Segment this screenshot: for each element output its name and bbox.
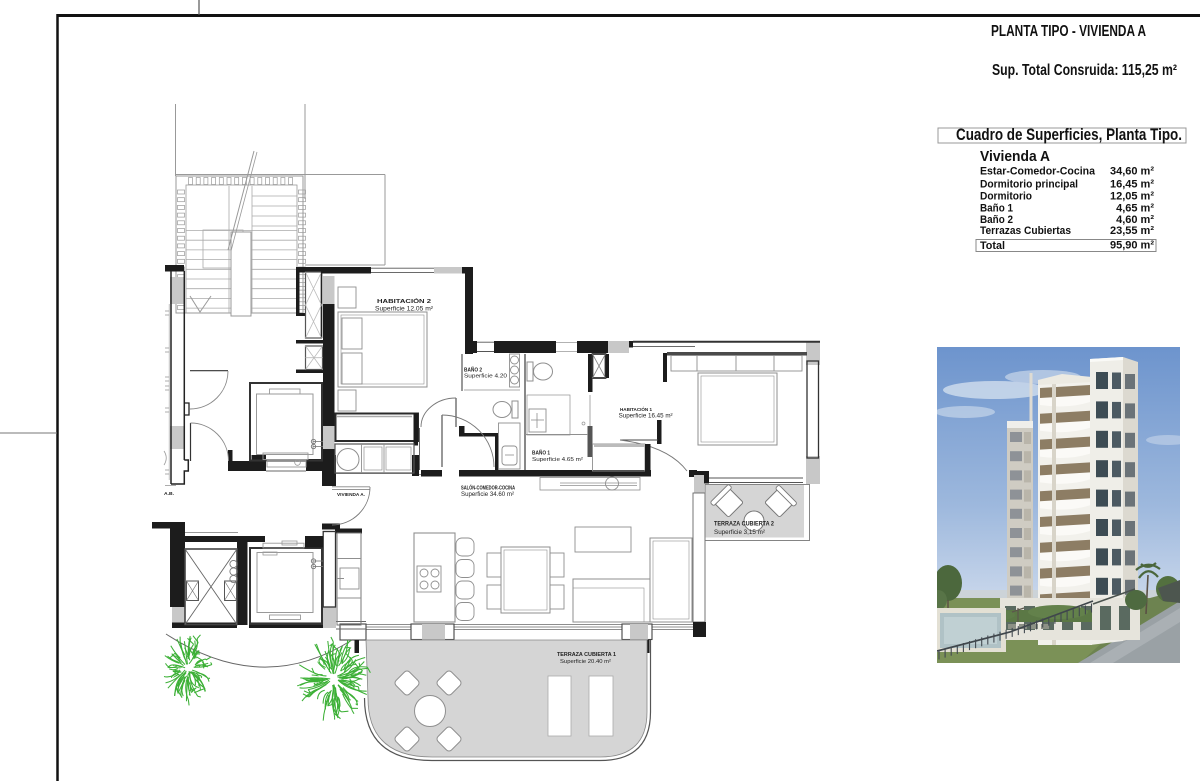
svg-text:PLANTA TIPO - VIVIENDA A: PLANTA TIPO - VIVIENDA A [991,23,1146,40]
svg-text:TERRAZA CUBIERTA 1: TERRAZA CUBIERTA 1 [557,652,616,658]
svg-text:TERRAZA CUBIERTA 2: TERRAZA CUBIERTA 2 [714,522,775,528]
svg-text:4,65 m²: 4,65 m² [1116,203,1154,215]
svg-text:23,55 m²: 23,55 m² [1110,225,1154,237]
svg-text:16,45 m²: 16,45 m² [1110,179,1154,191]
svg-text:VIVIENDA A.: VIVIENDA A. [337,492,365,497]
svg-text:Superficie 12.05 m²: Superficie 12.05 m² [375,307,433,313]
svg-text:BAÑO 2: BAÑO 2 [464,367,482,374]
svg-text:Terrazas Cubiertas: Terrazas Cubiertas [980,225,1071,237]
svg-text:Dormitorio principal: Dormitorio principal [980,179,1078,191]
svg-text:Total: Total [980,240,1005,252]
svg-text:BAÑO 1: BAÑO 1 [532,450,550,457]
svg-text:Dormitorio: Dormitorio [980,191,1032,203]
svg-text:Superficie 34.60 m²: Superficie 34.60 m² [461,492,514,498]
svg-text:HABITACIÓN 2: HABITACIÓN 2 [377,297,431,305]
svg-text:Superficie 16.45 m²: Superficie 16.45 m² [619,414,673,420]
svg-text:Baño 1: Baño 1 [980,203,1013,215]
svg-text:95,90 m²: 95,90 m² [1110,240,1154,252]
svg-text:Superficie 4.20: Superficie 4.20 [464,374,507,380]
svg-text:Estar-Comedor-Cocina: Estar-Comedor-Cocina [980,166,1096,178]
svg-text:SALÓN-COMEDOR-COCINA: SALÓN-COMEDOR-COCINA [461,484,515,492]
svg-text:Cuadro de Superficies, Planta: Cuadro de Superficies, Planta Tipo. [956,126,1182,144]
svg-text:12,05 m²: 12,05 m² [1110,191,1154,203]
svg-text:Vivienda A: Vivienda A [980,148,1050,165]
svg-text:Superficie 4.65 m²: Superficie 4.65 m² [532,457,583,463]
svg-text:Superficie 20.40 m²: Superficie 20.40 m² [560,659,611,665]
svg-text:Sup. Total Consruida: 115,25 m: Sup. Total Consruida: 115,25 m² [992,62,1177,79]
svg-text:Superficie 3,15 m²: Superficie 3,15 m² [714,530,765,536]
svg-text:A.B.: A.B. [164,491,174,496]
svg-text:HABITACIÓN 1: HABITACIÓN 1 [620,405,652,412]
svg-text:34,60 m²: 34,60 m² [1110,166,1154,178]
